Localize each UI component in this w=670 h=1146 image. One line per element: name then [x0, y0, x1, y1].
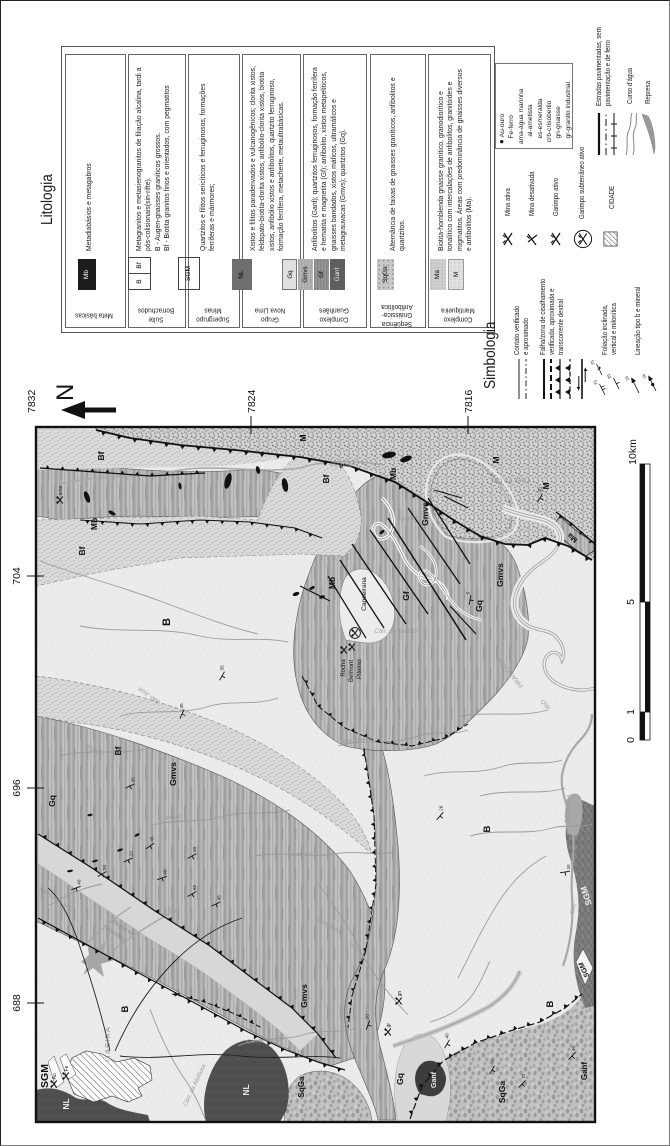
svg-text:20: 20 — [364, 1014, 369, 1020]
svg-text:10: 10 — [624, 375, 631, 382]
svg-text:65: 65 — [192, 884, 197, 890]
svg-text:Bf: Bf — [77, 546, 87, 555]
svg-text:B: B — [161, 618, 173, 626]
svg-text:Rocha: Rocha — [341, 659, 347, 677]
svg-text:Fe: Fe — [64, 1065, 70, 1071]
svg-text:35: 35 — [219, 665, 224, 671]
svg-text:Gmvs: Gmvs — [420, 502, 430, 526]
svg-text:Au: Au — [52, 1073, 58, 1079]
svg-text:B: B — [545, 1000, 556, 1007]
svg-text:70: 70 — [521, 1073, 526, 1079]
svg-text:696: 696 — [11, 779, 23, 797]
svg-text:7816: 7816 — [463, 389, 475, 413]
svg-text:40: 40 — [444, 1033, 449, 1039]
svg-text:75: 75 — [589, 359, 596, 366]
svg-text:70: 70 — [592, 379, 599, 386]
svg-text:SqGa: SqGa — [297, 1076, 306, 1097]
svg-text:7824: 7824 — [246, 389, 258, 413]
svg-text:40: 40 — [163, 869, 168, 875]
svg-text:45: 45 — [150, 836, 155, 842]
svg-text:Ganf: Ganf — [431, 1071, 438, 1088]
svg-text:30: 30 — [489, 1059, 494, 1065]
svg-text:M: M — [491, 456, 501, 463]
svg-text:Belmont: Belmont — [349, 660, 355, 682]
svg-text:B: B — [120, 1005, 131, 1012]
svg-text:Mb: Mb — [388, 468, 398, 480]
svg-text:35: 35 — [130, 777, 135, 783]
svg-text:0: 0 — [625, 737, 637, 743]
svg-text:688: 688 — [11, 994, 23, 1012]
svg-text:7832: 7832 — [26, 389, 38, 413]
svg-text:45: 45 — [216, 895, 221, 901]
svg-text:704: 704 — [11, 567, 23, 585]
svg-text:Gq: Gq — [395, 1073, 405, 1085]
svg-text:ITABIRA: ITABIRA — [103, 1026, 112, 1062]
svg-text:N: N — [52, 384, 79, 401]
svg-text:5: 5 — [625, 599, 637, 605]
svg-text:Bf: Bf — [321, 474, 331, 483]
svg-text:NOVA ERA: NOVA ERA — [492, 478, 533, 485]
svg-text:M: M — [541, 482, 551, 489]
svg-text:Ganf: Ganf — [580, 1062, 589, 1081]
svg-text:20: 20 — [128, 851, 133, 857]
svg-text:Gmvs: Gmvs — [495, 563, 505, 587]
svg-text:35: 35 — [179, 703, 184, 709]
svg-text:gr: gr — [386, 1023, 392, 1028]
svg-text:10km: 10km — [627, 439, 639, 465]
svg-text:40: 40 — [77, 879, 82, 885]
svg-text:Mb: Mb — [89, 518, 99, 530]
svg-text:16: 16 — [641, 373, 648, 380]
svg-text:Gf: Gf — [401, 591, 411, 601]
svg-text:1: 1 — [625, 709, 637, 715]
svg-text:Piteiras: Piteiras — [357, 659, 363, 679]
svg-text:SqGa: SqGa — [497, 1081, 507, 1103]
svg-text:Gmvs: Gmvs — [168, 762, 178, 786]
svg-text:NL: NL — [241, 1084, 251, 1095]
svg-text:Córr. do Tambor: Córr. do Tambor — [374, 629, 418, 635]
svg-text:gn: gn — [397, 991, 403, 997]
svg-text:Picarrão: Picarrão — [331, 463, 354, 469]
svg-text:40: 40 — [571, 1045, 576, 1051]
svg-text:Bf: Bf — [113, 746, 123, 755]
svg-text:Mb: Mb — [327, 577, 337, 589]
svg-text:50: 50 — [102, 864, 107, 870]
svg-text:Gq: Gq — [47, 795, 57, 807]
svg-text:ama: ama — [58, 485, 64, 495]
svg-text:Gmvs: Gmvs — [299, 984, 309, 1008]
svg-text:NL: NL — [61, 1098, 71, 1109]
svg-text:26: 26 — [438, 805, 443, 811]
svg-text:30: 30 — [192, 846, 197, 852]
svg-text:Bf: Bf — [96, 451, 106, 460]
svg-text:B: B — [482, 825, 493, 832]
svg-text:Capoeirana: Capoeirana — [361, 577, 368, 611]
svg-text:20: 20 — [606, 373, 613, 380]
svg-text:Gq: Gq — [474, 600, 484, 612]
svg-text:M: M — [298, 434, 308, 441]
svg-text:SGM: SGM — [39, 1064, 51, 1088]
svg-text:5: 5 — [465, 591, 470, 594]
